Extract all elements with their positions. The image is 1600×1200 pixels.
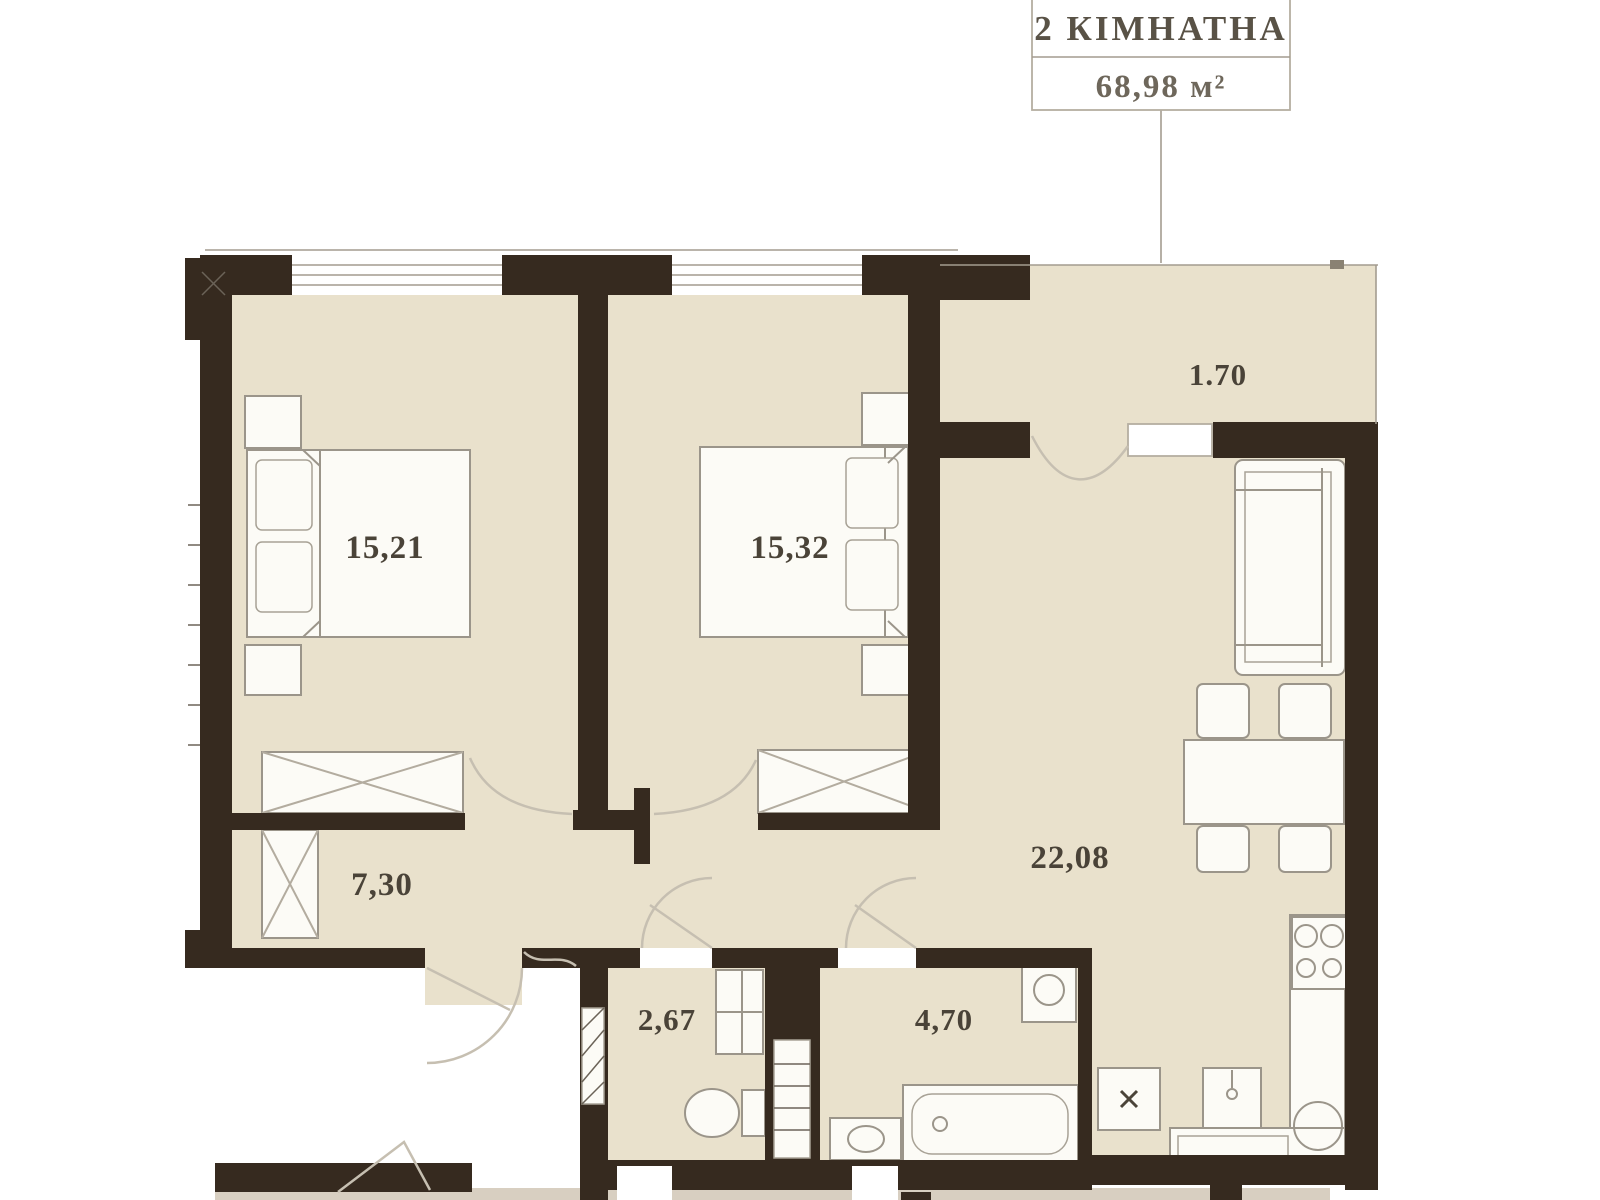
pillow	[846, 458, 898, 528]
chair	[1279, 826, 1331, 872]
nightstand	[862, 645, 910, 695]
entrance-hall-door	[1128, 424, 1212, 456]
room-label-bathroom: 4,70	[915, 1002, 973, 1037]
neighbour-door-gap	[852, 1166, 898, 1200]
room-label-bedroom1: 15,21	[345, 530, 424, 566]
title-box: 2 КІМНАТНА 68,98 м²	[1032, 0, 1290, 110]
corner-tick	[1330, 260, 1344, 269]
room-label-bedroom2: 15,32	[750, 530, 829, 566]
towel-ladder	[774, 1040, 810, 1158]
apartment-area-label: 68,98 м²	[1096, 69, 1227, 105]
room-label-living: 22,08	[1030, 840, 1109, 876]
vent-shaft	[582, 1008, 604, 1104]
room-label-entrance-hall: 1.70	[1189, 357, 1247, 392]
bath-door-gap	[838, 948, 916, 968]
dining-table	[1184, 740, 1344, 824]
neighbour-door-gap	[617, 1166, 672, 1200]
room-label-wc: 2,67	[638, 1002, 696, 1037]
pillow	[846, 540, 898, 610]
hallway-furniture	[262, 830, 318, 938]
toilet-bowl	[685, 1089, 739, 1137]
apartment-type-label: 2 КІМНАТНА	[1034, 9, 1288, 48]
pillow	[256, 542, 312, 612]
bath-vanity	[830, 1118, 901, 1160]
chair	[1197, 826, 1249, 872]
chair	[1279, 684, 1331, 738]
room-label-hallway: 7,30	[351, 867, 413, 903]
chair	[1197, 684, 1249, 738]
pillow	[256, 460, 312, 530]
nightstand	[245, 396, 301, 448]
toilet-tank	[742, 1090, 765, 1136]
wc-door-gap	[640, 948, 712, 968]
nightstand	[245, 645, 301, 695]
floorplan-drawing: 15,21 15,32 22,08 7,30 2,67 4,70 1.70 2 …	[0, 0, 1600, 1200]
floorplan-page: 15,21 15,32 22,08 7,30 2,67 4,70 1.70 2 …	[0, 0, 1600, 1200]
nightstand	[862, 393, 910, 445]
entry-threshold	[425, 948, 522, 1005]
